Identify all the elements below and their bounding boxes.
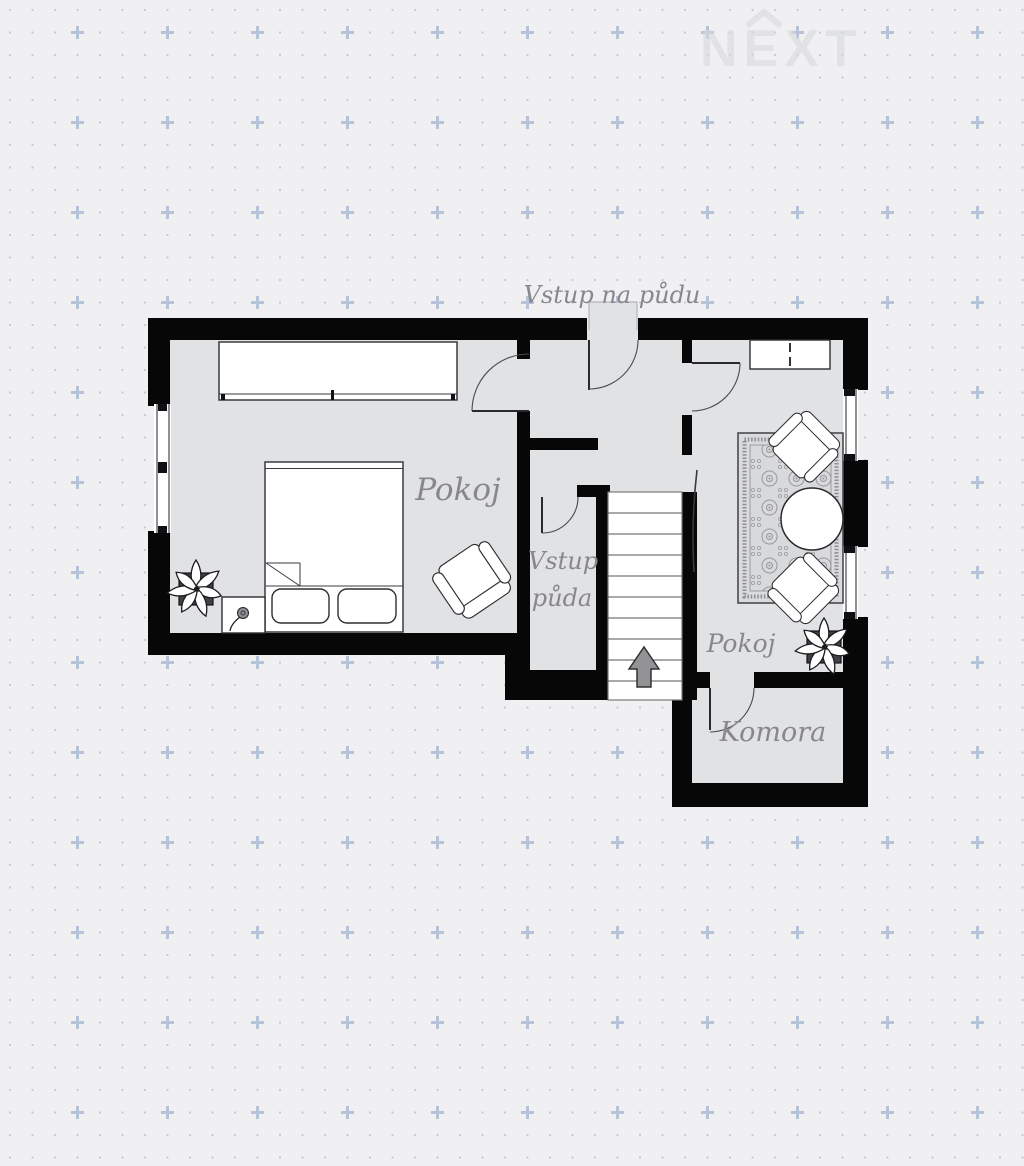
pillow-icon: [272, 589, 329, 623]
window-right-bottom-icon: [843, 546, 858, 619]
brand-watermark: NEXT: [700, 12, 863, 78]
window-left-icon: [154, 404, 171, 533]
wardrobe-icon: [219, 342, 457, 400]
round-table-icon: [781, 488, 843, 550]
staircase-icon: [608, 492, 682, 700]
window-right-top-icon: [843, 389, 858, 461]
label-attic-entry: Vstup na půdu: [524, 281, 701, 309]
label-closet-line1: Vstup: [528, 547, 598, 575]
double-bed-icon: [265, 462, 403, 632]
brand-watermark-text: NEXT: [700, 20, 863, 78]
floorplan-canvas: NEXT: [0, 0, 1024, 1166]
label-room-left: Pokoj: [414, 472, 501, 508]
pillow-icon: [338, 589, 396, 623]
label-storage: Komora: [719, 717, 827, 748]
dresser-icon: [750, 340, 830, 369]
label-room-right: Pokoj: [706, 629, 776, 658]
nightstand-icon: [222, 597, 265, 633]
label-closet-line2: půda: [532, 584, 593, 612]
